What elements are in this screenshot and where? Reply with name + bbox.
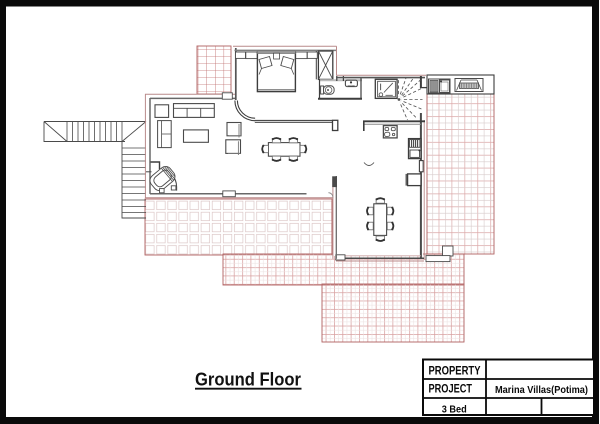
svg-text:PROJECT: PROJECT bbox=[429, 382, 473, 396]
svg-text:Ground Floor: Ground Floor bbox=[195, 368, 301, 389]
svg-text:Marina Villas(Potima): Marina Villas(Potima) bbox=[495, 385, 588, 396]
svg-text:3 Bed: 3 Bed bbox=[442, 405, 467, 416]
svg-text:PROPERTY: PROPERTY bbox=[429, 363, 481, 377]
